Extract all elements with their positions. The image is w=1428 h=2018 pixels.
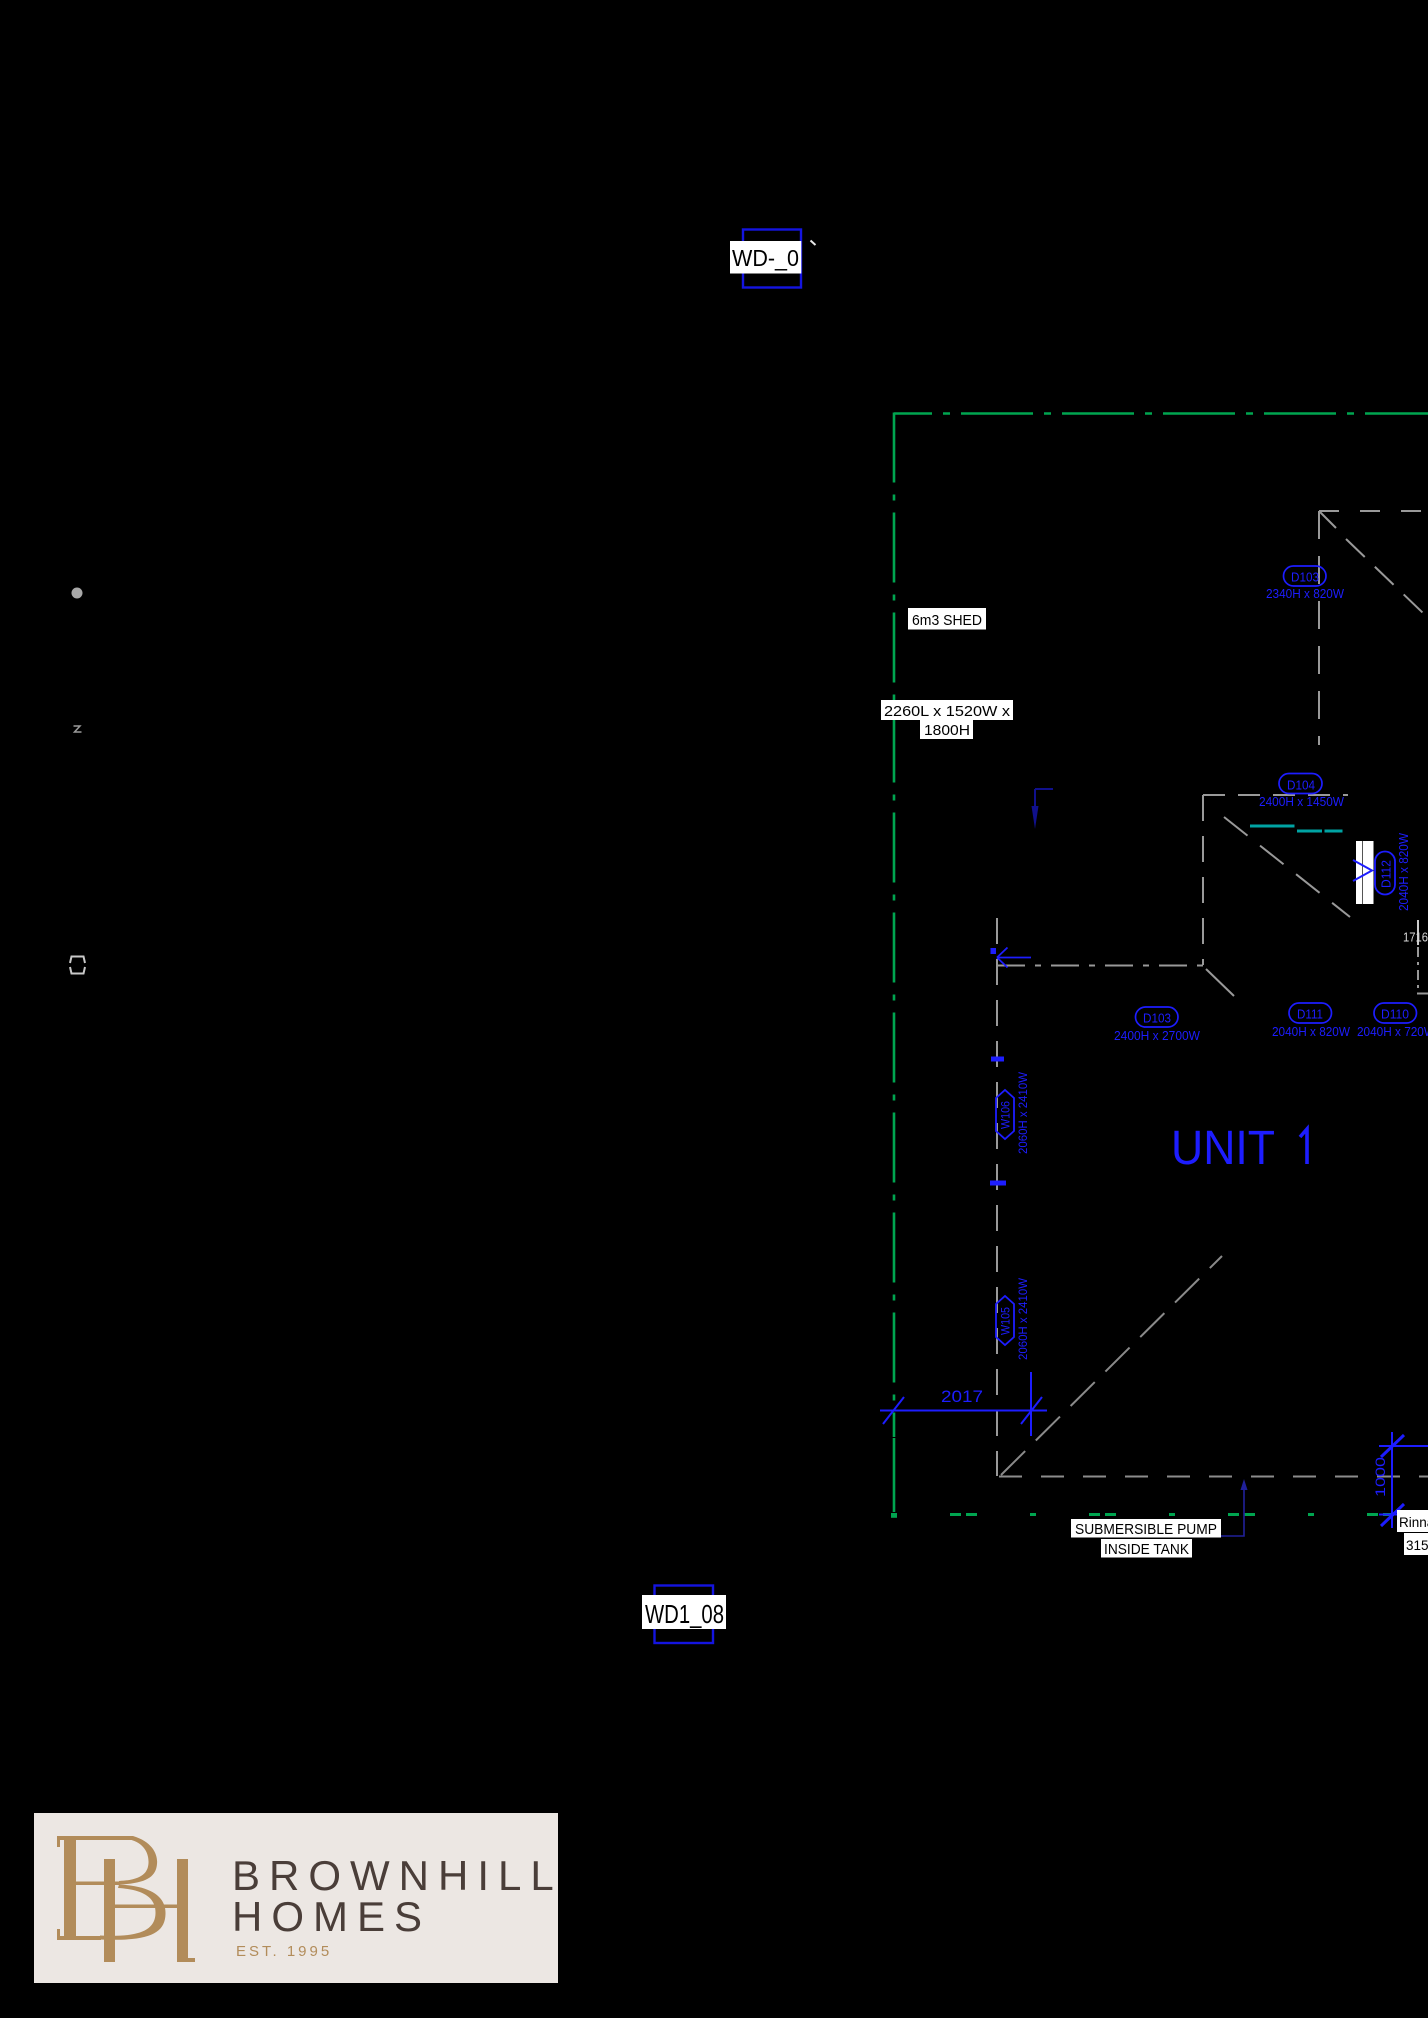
- svg-text:D104: D104: [1287, 778, 1315, 793]
- svg-text:2060H x 2410W: 2060H x 2410W: [1016, 1071, 1030, 1154]
- svg-text:Rinnai: Rinnai: [1399, 1515, 1428, 1530]
- svg-text:SUBMERSIBLE PUMP: SUBMERSIBLE PUMP: [1075, 1521, 1217, 1538]
- svg-text:D103: D103: [1143, 1011, 1171, 1026]
- svg-text:WD-_0: WD-_0: [732, 245, 799, 271]
- svg-text:2040H x 820W: 2040H x 820W: [1272, 1024, 1351, 1039]
- svg-text:W105: W105: [999, 1307, 1013, 1335]
- svg-text:D110: D110: [1381, 1007, 1409, 1022]
- svg-text:2040H x 720W: 2040H x 720W: [1357, 1024, 1428, 1039]
- svg-text:D112: D112: [1379, 860, 1394, 888]
- svg-text:2260L x 1520W x: 2260L x 1520W x: [884, 703, 1011, 720]
- svg-text:2040H x 820W: 2040H x 820W: [1396, 832, 1411, 911]
- svg-text:1716: 1716: [1403, 930, 1428, 945]
- svg-text:315 L: 315 L: [1406, 1538, 1428, 1553]
- svg-text:BROWNHILL: BROWNHILL: [232, 1852, 563, 1899]
- svg-text:D103: D103: [1291, 570, 1319, 585]
- svg-text:INSIDE TANK: INSIDE TANK: [1104, 1541, 1189, 1558]
- svg-text:D111: D111: [1297, 1007, 1323, 1022]
- svg-text:2017: 2017: [941, 1387, 983, 1406]
- svg-text:W106: W106: [999, 1101, 1013, 1129]
- svg-text:1800H: 1800H: [924, 722, 970, 739]
- svg-text:6m3 SHED: 6m3 SHED: [912, 612, 982, 629]
- svg-text:EST. 1995: EST. 1995: [236, 1943, 332, 1960]
- svg-text:2340H x 820W: 2340H x 820W: [1266, 586, 1345, 601]
- svg-text:2060H x 2410W: 2060H x 2410W: [1016, 1277, 1030, 1360]
- svg-text:2400H x 1450W: 2400H x 1450W: [1259, 794, 1345, 809]
- svg-text:2400H x 2700W: 2400H x 2700W: [1114, 1028, 1201, 1043]
- svg-text:HOMES: HOMES: [232, 1893, 431, 1940]
- svg-text:1000: 1000: [1373, 1457, 1388, 1497]
- svg-text:WD1_08: WD1_08: [645, 1599, 724, 1629]
- svg-text:UNIT: UNIT: [1171, 1122, 1275, 1175]
